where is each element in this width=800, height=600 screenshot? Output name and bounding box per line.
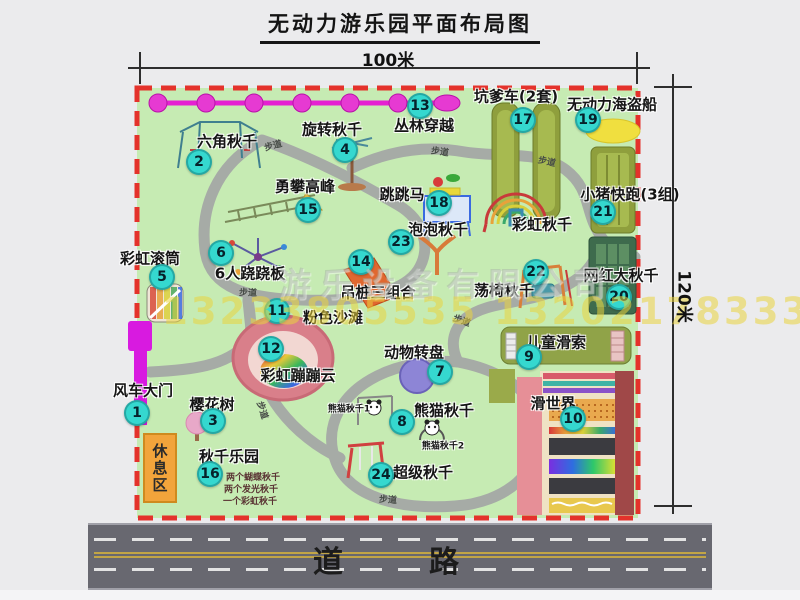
rest-area: 休息区: [143, 433, 177, 503]
right-dimension-tick-top: [654, 86, 692, 88]
turntable-graphic: [400, 359, 434, 393]
right-dimension-tick-bottom: [654, 505, 692, 507]
watermark-phone: 13233805535 13202178333: [162, 290, 800, 333]
rest-area-label: 休息区: [150, 443, 171, 494]
road-label: 道 路: [88, 537, 712, 581]
page-title: 无动力游乐园平面布局图: [0, 8, 800, 44]
pirate-ship-graphic: [586, 119, 640, 143]
piggy-run-graphic: [591, 147, 635, 233]
page-margin-bottom: [0, 590, 800, 600]
road: 道 路: [88, 523, 712, 590]
top-dimension-label: 100米: [358, 46, 418, 71]
top-dimension-tick-right: [636, 52, 638, 84]
right-dimension-label: 120米: [674, 269, 699, 325]
top-dimension-tick-left: [139, 52, 141, 84]
park-plan-page: 无动力游乐园平面布局图 100米 120米: [0, 0, 800, 600]
page-title-text: 无动力游乐园平面布局图: [260, 8, 540, 44]
